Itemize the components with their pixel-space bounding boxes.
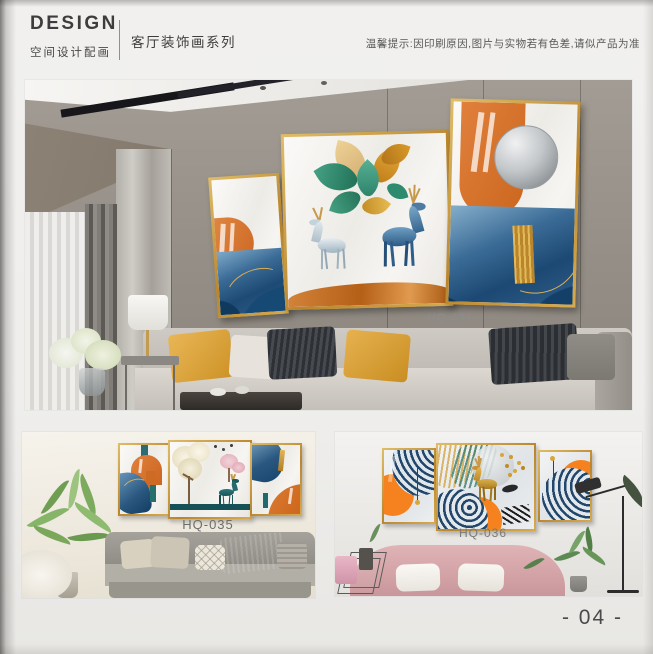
dark-leaf-edge [615, 475, 642, 508]
product-code-hq035: HQ-035 [158, 517, 258, 532]
dark-vase [359, 548, 373, 570]
orange-quarter-shape [268, 484, 300, 514]
brand-subtitle: 空间设计配画 [30, 44, 111, 60]
ceiling-spotlight [321, 81, 327, 85]
art-panel-right-hq035 [250, 443, 302, 516]
ceiling-spotlight [260, 86, 266, 90]
flower-blob [85, 340, 121, 370]
art-canvas [384, 450, 434, 522]
page-edge-left [0, 0, 16, 654]
tree-trunk [188, 476, 190, 504]
deer-silhouette-blue [375, 194, 423, 269]
gold-bar [278, 450, 285, 471]
page-edge-top [0, 0, 653, 7]
teal-band [170, 504, 250, 510]
black-fish [501, 483, 518, 493]
art-panel-left-hq034 [208, 173, 289, 319]
pillow-gray [567, 334, 615, 380]
art-panel-left-hq035 [118, 443, 170, 516]
pillow-beige [150, 536, 190, 569]
vertical-line-accent [553, 458, 554, 488]
glass-vase [79, 368, 105, 396]
art-panel-center-hq034 [281, 130, 454, 310]
pink-vase [335, 556, 357, 584]
side-table [121, 356, 179, 365]
small-leaf [370, 523, 381, 544]
sofa-base [109, 582, 311, 598]
art-canvas [120, 445, 168, 514]
pillow-white [458, 563, 505, 592]
art-canvas [448, 101, 577, 304]
deer-silhouette-teal [216, 476, 237, 505]
black-stripe-accent [501, 504, 531, 525]
art-canvas [252, 445, 300, 514]
pillow-yellow [343, 329, 411, 382]
floor-lamp-pole [622, 496, 624, 592]
deer-silhouette-gold [474, 461, 500, 501]
product-code-hq036: HQ-036 [433, 526, 533, 540]
blossom-tree-pink [232, 462, 245, 473]
side-table-leg [173, 365, 175, 410]
table-lamp-shade [128, 295, 168, 330]
header-divider [119, 20, 120, 60]
scene-photo-hq034: HQ-034 [25, 80, 632, 410]
art-canvas [170, 442, 250, 517]
table-lamp-stem [146, 330, 149, 356]
hanging-dots [214, 445, 217, 448]
scene-photo-hq035: HQ-035 [22, 432, 315, 598]
potted-plant [550, 530, 606, 594]
art-canvas [438, 445, 534, 529]
coffee-table [180, 392, 302, 410]
deer-silhouette-white [312, 211, 352, 270]
gold-butterflies [500, 453, 504, 457]
vertical-line-accent [417, 466, 418, 500]
table-bowl [235, 386, 249, 394]
teal-bar [263, 493, 268, 508]
art-panel-right-hq034 [445, 98, 580, 307]
art-panel-center-hq035 [168, 440, 252, 519]
brand-logo: DESIGN [30, 13, 118, 35]
orange-band [288, 281, 451, 307]
table-bowl [210, 388, 226, 396]
page-edge-bottom [0, 644, 653, 654]
floor-lamp-base [607, 590, 639, 593]
pillow-dark-striped [267, 326, 338, 379]
gold-dot [415, 500, 420, 505]
series-title: 客厅装饰画系列 [131, 31, 236, 51]
art-panel-left-hq036 [382, 448, 436, 524]
art-canvas [211, 176, 285, 315]
print-notice: 温馨提示:因印刷原因,图片与实物若有色差,请似产品为准 [366, 36, 640, 51]
page-number: - 04 - [562, 606, 623, 630]
art-panel-center-hq036 [436, 443, 536, 531]
flower-bouquet [49, 328, 129, 410]
pillow-white [396, 563, 441, 592]
catalog-page: DESIGN 空间设计配画 客厅装饰画系列 温馨提示:因印刷原因,图片与实物若有… [0, 0, 653, 654]
gold-dot [550, 456, 555, 461]
scene-photo-hq036: HQ-036 [335, 432, 642, 596]
plant-pot [570, 576, 587, 592]
art-canvas [284, 133, 450, 307]
pillow-gray [277, 542, 307, 569]
page-edge-right [643, 0, 653, 654]
product-code-hq034: HQ-034 [390, 312, 510, 324]
silver-circle [493, 125, 559, 191]
teal-bar [150, 485, 156, 502]
gray-sofa [105, 532, 315, 598]
